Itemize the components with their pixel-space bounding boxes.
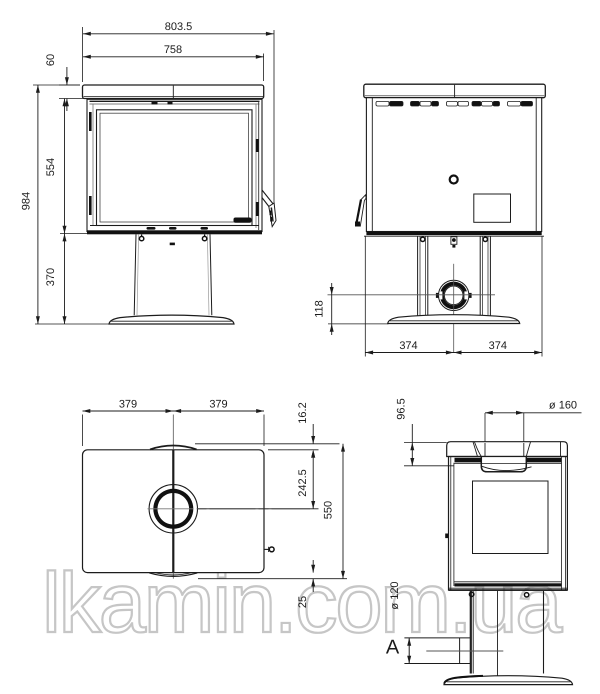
svg-text:758: 758: [164, 44, 182, 56]
svg-text:984: 984: [21, 192, 33, 210]
svg-text:A: A: [386, 637, 400, 659]
svg-text:379: 379: [119, 398, 137, 410]
svg-text:25: 25: [297, 596, 309, 608]
svg-text:242.5: 242.5: [297, 469, 309, 497]
svg-text:374: 374: [489, 340, 507, 352]
svg-text:ø 120: ø 120: [389, 581, 401, 609]
svg-text:379: 379: [209, 398, 227, 410]
svg-text:554: 554: [45, 158, 57, 176]
svg-text:803.5: 803.5: [165, 21, 193, 33]
svg-text:370: 370: [45, 268, 57, 286]
svg-text:118: 118: [314, 300, 326, 318]
svg-text:550: 550: [323, 501, 335, 519]
svg-text:16.2: 16.2: [297, 402, 309, 423]
svg-text:60: 60: [45, 54, 57, 66]
svg-text:374: 374: [399, 340, 417, 352]
svg-text:96.5: 96.5: [396, 398, 408, 419]
svg-text:ø 160: ø 160: [549, 400, 577, 412]
